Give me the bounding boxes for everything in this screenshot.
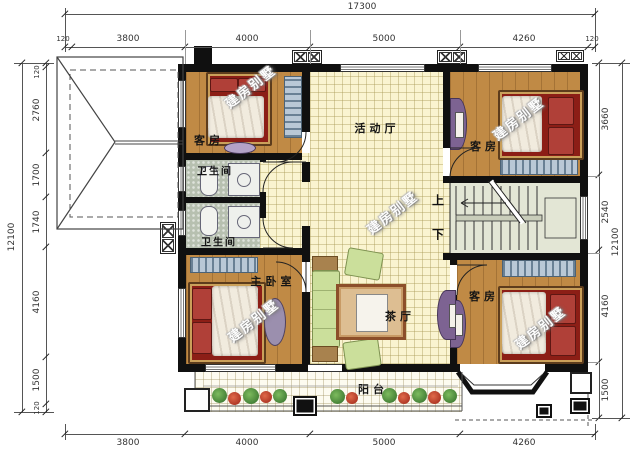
dim-bottom-1: 4000: [236, 438, 259, 448]
tv-tea-hall: [449, 304, 456, 328]
label-bath-upper: 卫生间: [197, 163, 233, 178]
wall-master-top: [186, 248, 302, 255]
plant: [412, 388, 427, 403]
extension-line: [310, 30, 311, 64]
wardrobe-guest-tr: [500, 158, 578, 175]
dim-line-right-segments: [599, 63, 600, 418]
dim-line-left-total: [22, 63, 23, 412]
label-master: 主卧室: [251, 273, 296, 289]
plant: [398, 392, 410, 404]
window-stairs-right: [580, 196, 588, 240]
dim-left-total: 12100: [7, 223, 17, 252]
window-bath-lower-left: [178, 210, 186, 236]
plant: [228, 392, 241, 405]
dim-left-1: 2760: [32, 99, 42, 122]
label-guest-tl: 客房: [194, 132, 224, 148]
wall-bath-top: [186, 153, 302, 160]
label-bath-lower: 卫生间: [201, 234, 237, 249]
dim-line-bottom: [65, 434, 595, 435]
label-guest-br: 客房: [469, 288, 499, 304]
wall-stairs-top: [443, 176, 588, 183]
plant: [243, 388, 259, 404]
dim-end-line: [592, 63, 630, 64]
sofa-arm: [312, 346, 338, 362]
wall-v1-c: [302, 226, 310, 262]
dim-top-1: 3800: [117, 34, 140, 44]
plant: [212, 388, 227, 403]
roof-plan: [57, 57, 183, 229]
dim-top-5: 120: [585, 35, 598, 43]
dim-line-left-segments: [46, 63, 47, 412]
label-stair-down: 下: [432, 226, 444, 243]
plant: [428, 391, 441, 404]
balcony-post-white: [184, 388, 210, 412]
dim-right-0: 3660: [601, 108, 611, 131]
extension-line: [460, 30, 461, 64]
wall-bottom-1: [178, 364, 205, 372]
floor-plan-canvas: 客房 卫生间 卫生间 主卧室 活动厅 茶厅 客房 客房 阳台 上 下 建房别墅 …: [0, 0, 640, 450]
ac-unit-icon: [437, 50, 467, 64]
extension-line: [588, 176, 600, 177]
dim-left-3: 1740: [32, 211, 42, 234]
pillow: [192, 288, 212, 320]
wall-bath-divider: [186, 197, 260, 203]
plant: [260, 391, 272, 403]
plant: [273, 389, 287, 403]
dim-line-top-segments: [65, 47, 595, 48]
dim-bottom-0: 3800: [117, 438, 140, 448]
ac-unit-icon: [292, 50, 322, 64]
dim-left-0: 120: [33, 65, 41, 78]
wardrobe-guest-tl: [284, 76, 302, 138]
balcony-post-white: [570, 372, 592, 394]
dim-bottom-2: 5000: [373, 438, 396, 448]
dim-line-right-total: [622, 63, 623, 418]
pillow: [550, 326, 576, 356]
extension-line: [185, 30, 186, 64]
extension-line: [588, 253, 600, 254]
wall-v1-d: [302, 292, 310, 364]
dim-left-4: 4160: [32, 291, 42, 314]
tea-table: [356, 294, 388, 332]
wall-v1-b: [302, 162, 310, 182]
label-guest-tr: 客房: [470, 138, 500, 154]
wall-v2-a: [443, 64, 450, 148]
wall-v3-a: [450, 253, 457, 265]
dim-end-line: [592, 418, 630, 419]
pillow: [192, 322, 212, 354]
armchair: [344, 247, 384, 281]
dim-right-total: 12100: [611, 228, 621, 257]
wardrobe-guest-br: [502, 260, 576, 277]
dim-top-0: 120: [56, 35, 69, 43]
label-activity-hall: 活动厅: [355, 120, 400, 136]
dim-top-4: 4260: [513, 34, 536, 44]
ac-unit-icon: [160, 222, 176, 254]
wardrobe-master: [190, 257, 258, 273]
dim-bottom-3: 4260: [513, 438, 536, 448]
window-bath-upper-left: [178, 166, 186, 192]
window-guest-tl-left: [178, 80, 186, 128]
floor-stairs: [450, 183, 580, 253]
plant: [443, 389, 457, 403]
plant: [346, 392, 358, 404]
balcony-door-opening: [308, 364, 342, 372]
ac-unit-icon: [556, 50, 584, 62]
floor-stair-entry: [443, 183, 450, 253]
label-stair-up: 上: [432, 192, 444, 209]
dim-left-5: 1500: [32, 369, 42, 392]
pillow: [548, 127, 574, 155]
wall-bottom-4: [545, 364, 588, 372]
extension-line: [588, 362, 600, 363]
dim-top-3: 5000: [373, 34, 396, 44]
tv-guest-tr: [455, 112, 464, 138]
balcony-post-black: [536, 404, 552, 418]
dim-line-top-total: [65, 14, 595, 15]
bay-window: [458, 372, 547, 392]
wall-v1-a: [302, 64, 310, 132]
dim-right-3: 1500: [601, 379, 611, 402]
window-guest-tr-top: [478, 64, 552, 72]
wall-corner-post: [194, 46, 212, 66]
plant: [330, 389, 345, 404]
wall-bath-right-b: [260, 192, 266, 218]
armchair: [342, 338, 382, 371]
balcony-post-black: [293, 396, 317, 416]
window-master-bottom: [205, 364, 276, 372]
pillow: [548, 97, 574, 125]
window-hall-top: [340, 64, 425, 72]
wall-stairs-bottom: [443, 253, 588, 260]
dim-top-total: 17300: [348, 2, 377, 12]
nightstand-guest-tl: [224, 142, 256, 154]
dim-left-2: 1700: [32, 164, 42, 187]
dim-top-2: 4000: [236, 34, 259, 44]
wall-bottom-2: [276, 364, 308, 372]
window-master-left: [178, 288, 186, 338]
dim-left-6: 120: [33, 401, 41, 414]
plant: [382, 388, 397, 403]
dim-right-2: 4160: [601, 295, 611, 318]
label-tea-hall: 茶厅: [385, 308, 415, 324]
dim-right-1: 2540: [601, 201, 611, 224]
balcony-post-black: [570, 398, 590, 414]
sink-bath-lower: [200, 206, 218, 236]
